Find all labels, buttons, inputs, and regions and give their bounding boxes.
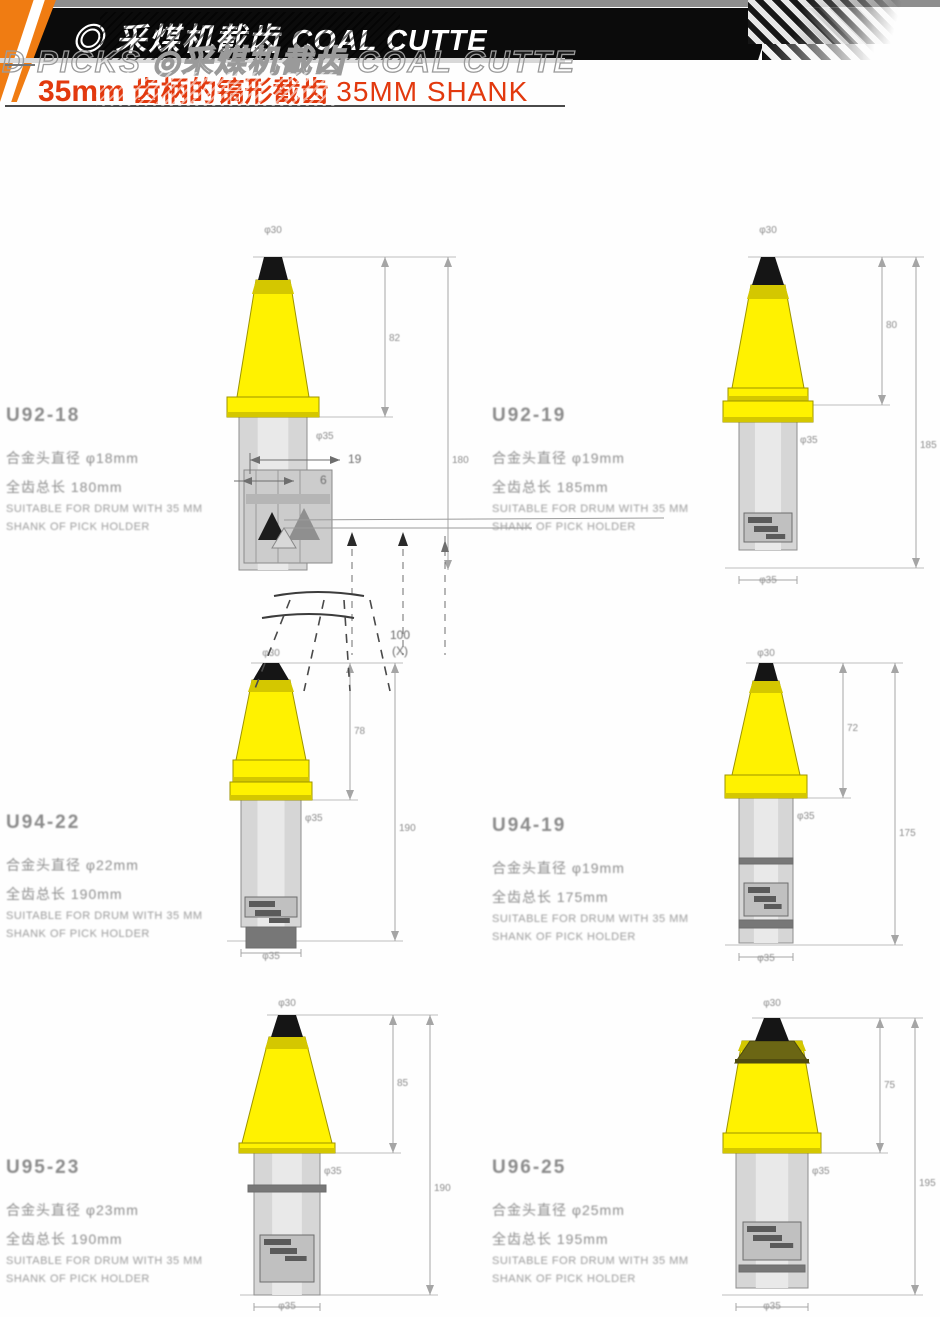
subtitle-tick bbox=[5, 64, 35, 66]
dim-shank-label: φ35 bbox=[797, 811, 815, 822]
dim-cone-label: 78 bbox=[354, 726, 365, 737]
dim-shank-label: φ35 bbox=[324, 1166, 342, 1177]
dim-shank-label: φ35 bbox=[800, 435, 818, 446]
dim-top-label: φ30 bbox=[763, 998, 781, 1009]
top-right-pixel-patch bbox=[748, 0, 918, 44]
dim-top-label: φ30 bbox=[757, 648, 775, 659]
dim-overall-label: 190 bbox=[399, 823, 416, 834]
inset-dim-19: 19 bbox=[348, 452, 361, 466]
page-subtitle: 35mm 齿柄的镐形截齿 35MM SHANK bbox=[38, 70, 528, 110]
dim-cone-label: 75 bbox=[884, 1080, 895, 1091]
dim-bottom-label: φ35 bbox=[262, 951, 280, 962]
tip-detail-lines bbox=[232, 448, 672, 693]
dim-cone-label: 80 bbox=[886, 320, 897, 331]
dim-overall-label: 195 bbox=[919, 1178, 936, 1189]
dim-shank-label: φ35 bbox=[812, 1166, 830, 1177]
pick-drawing-5: φ3085190φ35φ35 bbox=[170, 998, 470, 1317]
dim-overall-label: 190 bbox=[434, 1183, 451, 1194]
dim-bottom-label: φ35 bbox=[278, 1301, 296, 1312]
inset-dim-x: (X) bbox=[392, 644, 408, 658]
dim-overall-label: 175 bbox=[899, 828, 916, 839]
dim-top-label: φ30 bbox=[278, 998, 296, 1009]
dim-shank-label: φ35 bbox=[305, 813, 323, 824]
dim-cone-label: 72 bbox=[847, 723, 858, 734]
subtitle-cn: 齿柄的镐形截齿 bbox=[125, 76, 337, 107]
catalog-page: { "header": { "logo_glyph": "◎", "banner… bbox=[0, 0, 940, 1317]
dim-cone-label: 82 bbox=[389, 333, 400, 344]
dim-top-label: φ30 bbox=[264, 225, 282, 236]
pick-drawing-6: φ3075195φ35φ35 bbox=[660, 998, 940, 1317]
dim-cone-label: 85 bbox=[397, 1078, 408, 1089]
pick-drawing-2: φ3080185φ35φ35 bbox=[660, 225, 940, 597]
inset-dim-100: 100 bbox=[390, 628, 410, 642]
pick-drawing-3: φ3078190φ35φ35 bbox=[170, 648, 470, 973]
dim-bottom-label: φ35 bbox=[759, 575, 777, 586]
dim-top-label: φ30 bbox=[759, 225, 777, 236]
dim-shank-label: φ35 bbox=[316, 431, 334, 442]
subtitle-en: 35MM SHANK bbox=[336, 76, 528, 107]
pick-drawing-4: φ3072175φ35φ35 bbox=[660, 648, 940, 973]
dim-bottom-label: φ35 bbox=[757, 953, 775, 964]
dim-bottom-label: φ35 bbox=[763, 1301, 781, 1312]
tip-detail-inset: 19 6 100 (X) bbox=[232, 448, 672, 693]
subtitle-underline bbox=[5, 105, 565, 107]
inset-dim-6: 6 bbox=[320, 473, 327, 487]
subtitle-shank-size: 35mm bbox=[38, 75, 125, 108]
dim-overall-label: 185 bbox=[920, 440, 937, 451]
